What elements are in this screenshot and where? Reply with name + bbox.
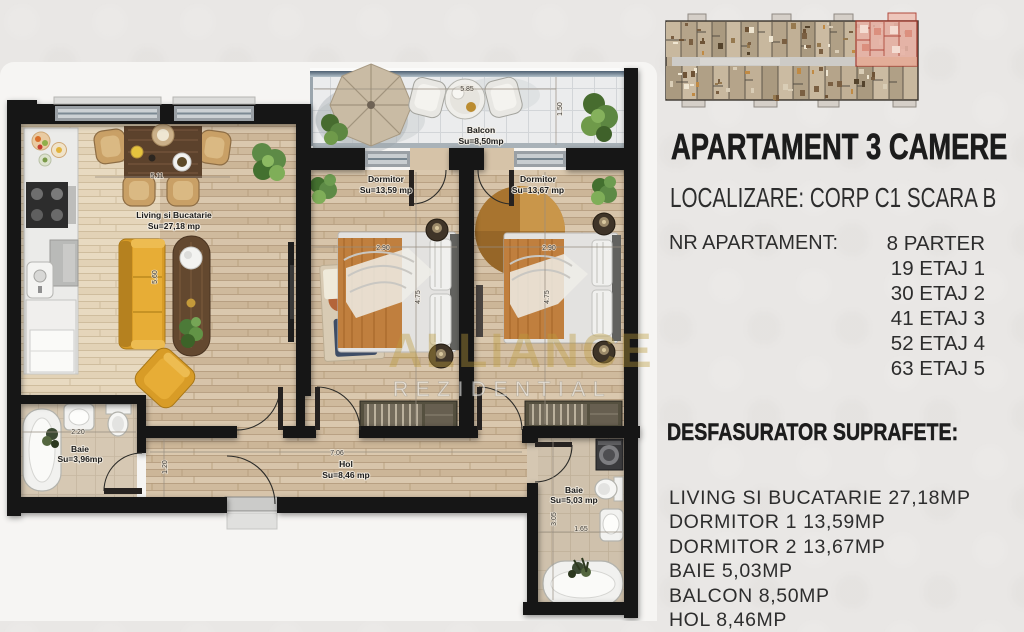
svg-text:Balcon: Balcon (467, 125, 495, 135)
svg-text:7.06: 7.06 (330, 450, 344, 457)
svg-text:Su=27,18 mp: Su=27,18 mp (148, 221, 200, 231)
svg-text:2.90: 2.90 (542, 245, 556, 252)
svg-text:4.75: 4.75 (544, 290, 551, 304)
svg-text:3.05: 3.05 (551, 512, 558, 526)
svg-text:Baie: Baie (565, 485, 583, 495)
svg-text:ALLIANCE: ALLIANCE (388, 325, 655, 378)
svg-text:Dormitor: Dormitor (368, 174, 405, 184)
svg-text:Dormitor: Dormitor (520, 174, 557, 184)
svg-text:Hol: Hol (339, 459, 353, 469)
svg-text:Su=13,59 mp: Su=13,59 mp (360, 185, 412, 195)
svg-text:5.11: 5.11 (150, 173, 163, 180)
svg-text:Baie: Baie (71, 444, 89, 454)
svg-text:1.65: 1.65 (574, 526, 588, 533)
svg-text:1.20: 1.20 (162, 460, 169, 474)
svg-text:Su=8,50mp: Su=8,50mp (458, 136, 503, 146)
svg-text:Su=8,46 mp: Su=8,46 mp (322, 470, 369, 480)
svg-text:5.60: 5.60 (152, 270, 159, 284)
svg-text:Living si Bucatarie: Living si Bucatarie (136, 210, 212, 220)
svg-text:2.90: 2.90 (376, 245, 390, 252)
svg-text:Su=5,03 mp: Su=5,03 mp (550, 495, 597, 505)
svg-text:REZIDENTIAL: REZIDENTIAL (393, 378, 612, 401)
svg-text:Su=13,67 mp: Su=13,67 mp (512, 185, 564, 195)
svg-text:4.75: 4.75 (415, 290, 422, 304)
svg-text:5.85: 5.85 (460, 86, 474, 93)
svg-text:1.50: 1.50 (557, 102, 564, 116)
svg-text:2.20: 2.20 (71, 429, 85, 436)
svg-text:Su=3,96mp: Su=3,96mp (57, 454, 102, 464)
